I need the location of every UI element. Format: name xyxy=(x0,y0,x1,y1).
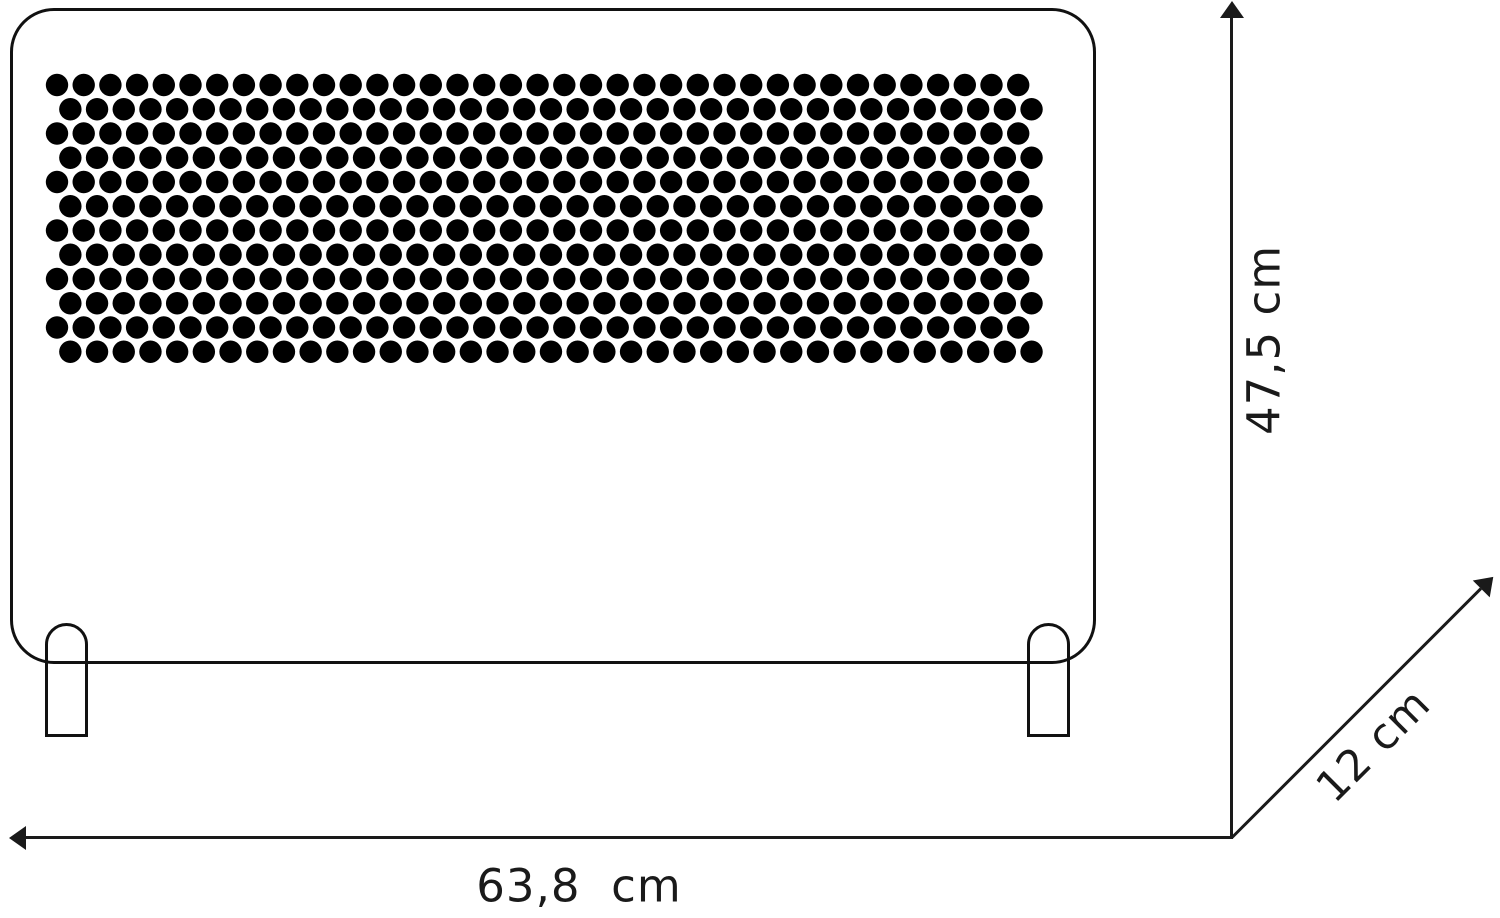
dimension-diagram: 63,8 cm 47,5 cm 12 cm xyxy=(0,0,1500,918)
height-dimension-line xyxy=(1230,18,1233,838)
heater-foot-right xyxy=(1027,623,1070,737)
up-arrow-icon xyxy=(1220,1,1244,18)
depth-dimension-line xyxy=(1231,588,1482,839)
heater-foot-left xyxy=(45,623,88,737)
left-arrow-icon xyxy=(9,826,26,850)
diagonal-arrow-icon xyxy=(1472,568,1500,597)
height-label: 47,5 cm xyxy=(1242,245,1287,435)
width-dimension-line xyxy=(26,836,1233,839)
width-label: 63,8 cm xyxy=(476,864,681,909)
heater-body-outline xyxy=(10,8,1096,664)
depth-label: 12 cm xyxy=(1310,682,1439,811)
